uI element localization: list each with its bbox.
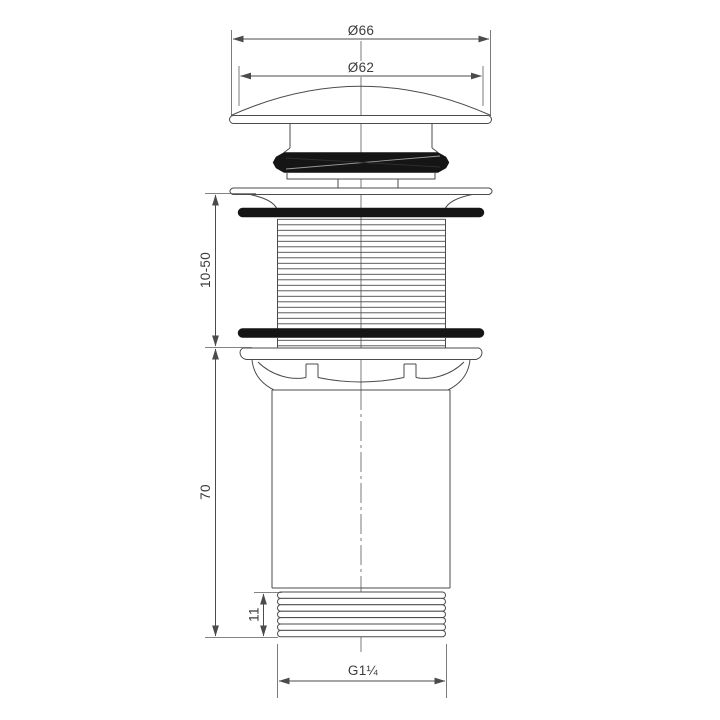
thread-below-ring: [278, 338, 446, 348]
dim-connection-thread-label: G1¼: [348, 663, 379, 678]
cap-dome: [230, 86, 492, 152]
dim-clamping-range-label: 10-50: [198, 252, 213, 288]
dim-cap-outer-label: Ø66: [348, 23, 374, 38]
backnut-washer: [240, 348, 482, 360]
dim-body-length-label: 70: [198, 484, 213, 500]
technical-drawing-page: Ø66 Ø62 10-50 70 11 G1¼: [0, 0, 720, 720]
lower-seal-ring: [238, 329, 484, 338]
dim-connection-thread: G1¼: [278, 644, 447, 698]
dim-body-length: 70: [198, 349, 278, 638]
basin-waste-drawing: Ø66 Ø62 10-50 70 11 G1¼: [0, 0, 720, 720]
threaded-body: [278, 219, 446, 329]
bottom-connection-thread: [278, 592, 446, 637]
dim-bottom-thread-length: 11: [247, 593, 283, 637]
dim-cap-dome-label: Ø62: [348, 60, 374, 75]
upper-seal-ring: [238, 208, 484, 217]
dim-bottom-thread-length-label: 11: [247, 607, 262, 622]
